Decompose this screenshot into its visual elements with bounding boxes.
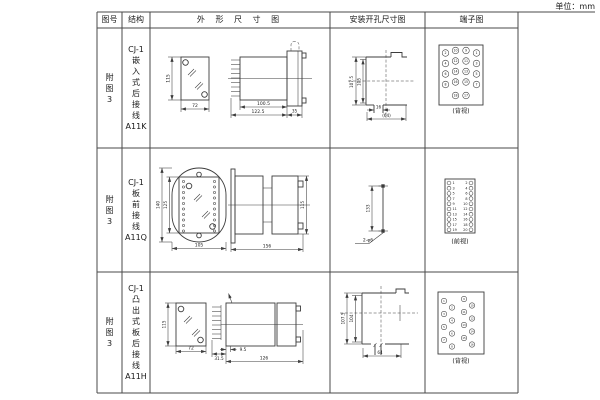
row2-outline-drawing: 140 125 105 156 115	[156, 168, 311, 252]
cover-hatch-mark	[184, 316, 200, 337]
svg-text:12: 12	[470, 316, 474, 320]
dim-front-height: 115	[166, 74, 172, 83]
terminal-comb	[212, 305, 221, 340]
svg-text:20: 20	[463, 228, 467, 232]
terminal-comb	[231, 60, 240, 96]
row2-figure-no: 附 图 3	[97, 148, 122, 272]
row3-terminal-drawing: 12345678910111213141516 (背视)	[438, 292, 484, 365]
dim-front-height: 115	[162, 320, 167, 328]
svg-text:8: 8	[465, 197, 467, 201]
dim-flange-depth: 35	[292, 109, 298, 114]
svg-text:2: 2	[451, 305, 453, 309]
hole-diameter-note: 2-φ6	[363, 238, 373, 244]
row2-view-label: (前视)	[451, 238, 468, 246]
dim-total-depth: 122.5	[252, 109, 265, 115]
svg-text:1: 1	[453, 181, 455, 185]
svg-text:10: 10	[463, 202, 467, 206]
svg-text:13: 13	[464, 70, 468, 74]
dim-gap-depth: 9.5	[240, 347, 247, 352]
svg-text:8: 8	[444, 83, 446, 87]
unit-label: 单位：mm	[495, 1, 595, 12]
svg-text:7: 7	[453, 197, 455, 201]
svg-text:16: 16	[453, 80, 457, 84]
svg-text:17: 17	[464, 94, 468, 98]
dim-pin-depth: 31.5	[214, 356, 224, 361]
dim-body-height: 125	[163, 201, 168, 209]
row2-terminal-drawing: 1357911131517192468101214161820 (前视)	[445, 179, 475, 246]
header-terminal-col: 端子图	[425, 12, 518, 28]
svg-text:1: 1	[443, 299, 445, 303]
dim-hole-spacing: 133	[366, 204, 371, 212]
row3-view-label: (背视)	[452, 357, 469, 365]
svg-text:9: 9	[463, 297, 465, 301]
terminal-pins-3: 12345678910111213141516	[441, 296, 474, 349]
dim-front-width: 72	[188, 346, 194, 352]
svg-text:5: 5	[475, 72, 477, 76]
svg-text:11: 11	[453, 207, 457, 211]
svg-text:14: 14	[463, 212, 467, 216]
svg-text:15: 15	[453, 218, 457, 222]
row1-terminal-drawing: 210914121136141358161571817 (背视)	[439, 45, 483, 115]
svg-text:15: 15	[462, 336, 466, 340]
svg-text:6: 6	[465, 192, 467, 196]
row3-outline-drawing: 115 72 31.5 9.5 126	[162, 294, 304, 365]
svg-text:6: 6	[451, 331, 453, 335]
svg-text:8: 8	[451, 344, 453, 348]
latch-arrow	[229, 294, 233, 304]
dim-front-width: 105	[195, 243, 204, 249]
cover-hatch-mark	[194, 194, 210, 219]
dim-body-depth: 126	[260, 356, 269, 362]
row3-figure-no: 附 图 3	[97, 272, 122, 393]
svg-text:15: 15	[464, 80, 468, 84]
svg-text:5: 5	[443, 325, 445, 329]
dim-front-width: 72	[192, 103, 198, 109]
svg-text:7: 7	[475, 83, 477, 87]
svg-text:11: 11	[462, 310, 466, 314]
row2-structure: CJ-1 板 前 接 线 A11Q	[122, 148, 150, 272]
svg-text:4: 4	[444, 62, 446, 66]
svg-text:9: 9	[453, 202, 455, 206]
row1-outline-drawing: 115 72 100.5 122.5 35	[166, 42, 313, 119]
svg-text:7: 7	[443, 338, 445, 342]
row3-mounting-drawing: 107.5 104 64	[340, 286, 418, 358]
svg-text:14: 14	[453, 70, 457, 74]
svg-text:2: 2	[444, 51, 446, 55]
svg-text:10: 10	[453, 49, 457, 53]
svg-text:13: 13	[462, 323, 466, 327]
svg-text:10: 10	[470, 303, 474, 307]
svg-text:12: 12	[463, 207, 467, 211]
row1-mounting-drawing: 107.5 105 16 (64)	[348, 50, 414, 121]
dim-flange-height: 140	[156, 201, 161, 209]
dim-cutout-outer-height: 107.5	[349, 76, 354, 88]
mounting-clip-mark	[291, 42, 299, 52]
svg-text:9: 9	[465, 49, 467, 53]
svg-text:17: 17	[453, 223, 457, 227]
row1-figure-no: 附 图 3	[97, 28, 122, 148]
dim-slot-width: 16	[376, 105, 382, 110]
svg-text:2: 2	[465, 181, 467, 185]
svg-text:3: 3	[475, 62, 477, 66]
row1-structure: CJ-1 嵌 入 式 后 接 线 A11K	[122, 28, 150, 148]
dim-cutout-width: (64)	[382, 113, 391, 118]
svg-text:13: 13	[453, 212, 457, 216]
cover-hatch-mark	[188, 69, 203, 90]
svg-text:3: 3	[443, 312, 445, 316]
datasheet-page: 115 72 100.5 122.5 35	[0, 0, 600, 400]
svg-text:18: 18	[453, 94, 457, 98]
dim-side-height: 115	[300, 201, 305, 209]
svg-text:18: 18	[463, 223, 467, 227]
svg-text:4: 4	[465, 186, 467, 190]
svg-text:6: 6	[444, 72, 446, 76]
terminal-pins-2: 1357911131517192468101214161820	[447, 181, 473, 232]
svg-text:12: 12	[453, 59, 457, 63]
dim-cutout-inner-height: 105	[357, 78, 362, 86]
dim-cutout-width: 64	[377, 350, 383, 355]
svg-text:16: 16	[463, 218, 467, 222]
svg-text:11: 11	[464, 59, 468, 63]
svg-text:16: 16	[470, 342, 474, 346]
svg-text:19: 19	[453, 228, 457, 232]
row1-view-label: (背视)	[452, 107, 469, 115]
svg-text:4: 4	[451, 318, 453, 322]
svg-text:14: 14	[470, 329, 474, 333]
dim-body-depth: 100.5	[257, 101, 270, 107]
dim-cutout-inner-height: 104	[349, 314, 354, 322]
dim-cutout-outer-height: 107.5	[341, 312, 346, 324]
dimension-drawings: 115 72 100.5 122.5 35	[0, 0, 600, 400]
svg-text:3: 3	[453, 186, 455, 190]
dim-total-depth: 156	[263, 244, 272, 250]
header-outline-col: 外 形 尺 寸 图	[150, 12, 330, 28]
header-structure-col: 结构	[122, 12, 150, 28]
header-figure-col: 图号	[97, 12, 122, 28]
row3-structure: CJ-1 凸 出 式 板 后 接 线 A11H	[122, 272, 150, 393]
svg-text:1: 1	[475, 51, 477, 55]
svg-text:5: 5	[453, 192, 455, 196]
terminal-pins-1: 210914121136141358161571817	[442, 47, 480, 99]
row2-mounting-drawing: 133 2-φ6	[355, 184, 388, 243]
header-mounting-col: 安装开孔尺寸图	[330, 12, 425, 28]
